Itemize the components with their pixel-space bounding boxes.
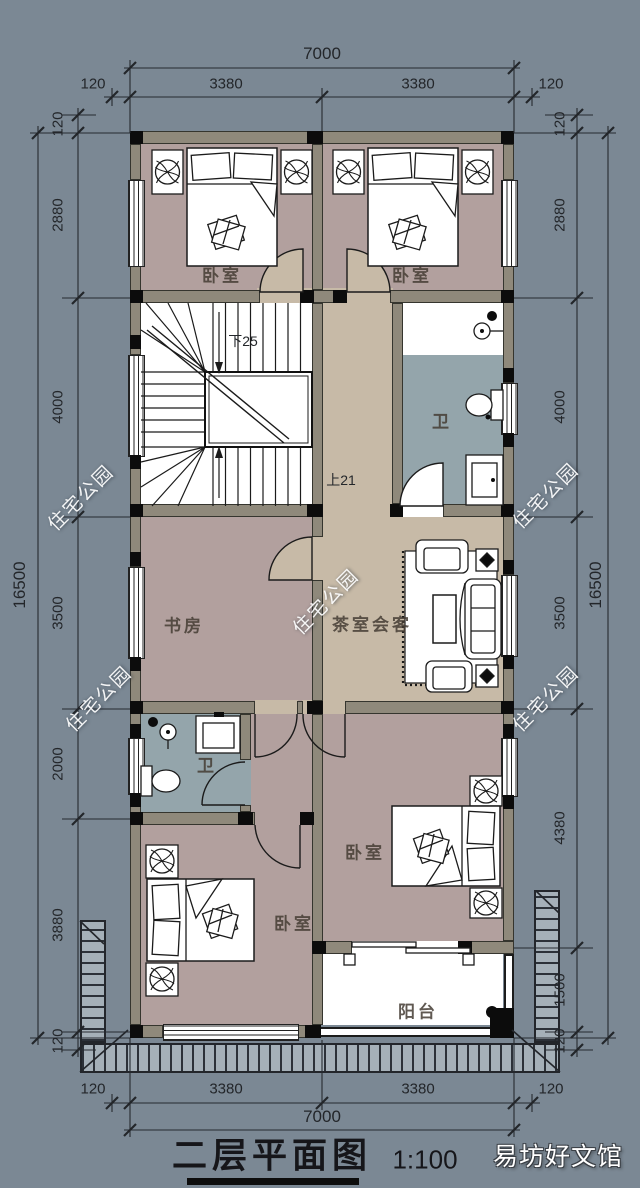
sofa-set	[403, 540, 501, 692]
dim-right-seg: 4000	[552, 390, 569, 423]
dim-left-seg: 3880	[50, 908, 67, 941]
bed-top-left	[152, 148, 312, 266]
room-label-tea-room: 茶室会客	[332, 611, 412, 636]
staircase	[141, 303, 312, 506]
room-label-study: 书房	[164, 612, 204, 637]
plan-scale: 1:100	[392, 1145, 457, 1176]
room-label-bedroom-bl: 卧室	[274, 910, 314, 935]
dim-bottom-seg: 3380	[209, 1081, 242, 1098]
dim-right-seg: 3500	[552, 596, 569, 629]
dim-left-seg: 4000	[50, 390, 67, 423]
dim-left-seg: 120	[50, 111, 67, 136]
bed-bottom-left	[146, 845, 254, 996]
dim-top-seg: 120	[538, 76, 563, 93]
stair-down-label: 下25	[228, 331, 258, 351]
dim-bottom-seg: 120	[80, 1081, 105, 1098]
dim-left-seg: 2880	[50, 198, 67, 231]
dim-right-seg: 120	[552, 1028, 569, 1053]
dim-left-seg: 3500	[50, 596, 67, 629]
room-label-bedroom-br: 卧室	[345, 839, 385, 864]
dim-bottom-overall: 7000	[303, 1107, 341, 1127]
dim-top-seg: 120	[80, 76, 105, 93]
room-label-bath-bottom: 卫	[197, 752, 217, 777]
dim-top-seg: 3380	[401, 76, 434, 93]
room-label-bedroom-tl: 卧室	[202, 262, 242, 287]
bed-top-right	[333, 148, 493, 266]
dim-bottom-seg: 120	[538, 1081, 563, 1098]
dim-left-overall: 16500	[10, 561, 30, 608]
stair-up-label: 上21	[326, 470, 356, 490]
dim-top-overall: 7000	[303, 44, 341, 64]
room-label-bath-top: 卫	[432, 408, 452, 433]
dim-left-seg: 2000	[50, 747, 67, 780]
dim-top-seg: 3380	[209, 76, 242, 93]
title-underline	[187, 1178, 359, 1185]
dim-right-seg: 120	[552, 111, 569, 136]
room-label-bedroom-tr: 卧室	[392, 262, 432, 287]
dim-right-seg: 2880	[552, 198, 569, 231]
floor-plan-canvas: 卧室 卧室 书房 茶室会客 卫 卫 卧室 卧室 阳台 下25 上21 7000 …	[0, 0, 640, 1188]
watermark-brand: 易坊好文馆	[493, 1137, 623, 1173]
dim-bottom-seg: 3380	[401, 1081, 434, 1098]
bed-bottom-right	[392, 776, 502, 918]
plan-title: 二层平面图	[172, 1128, 372, 1179]
room-label-balcony: 阳台	[398, 998, 438, 1023]
dim-right-seg: 1500	[552, 973, 569, 1006]
bath-bottom-fixtures	[141, 712, 240, 796]
dim-left-seg: 120	[50, 1028, 67, 1053]
dim-right-overall: 16500	[586, 561, 606, 608]
dim-right-seg: 4380	[552, 811, 569, 844]
bath-top-fixtures	[466, 311, 503, 505]
